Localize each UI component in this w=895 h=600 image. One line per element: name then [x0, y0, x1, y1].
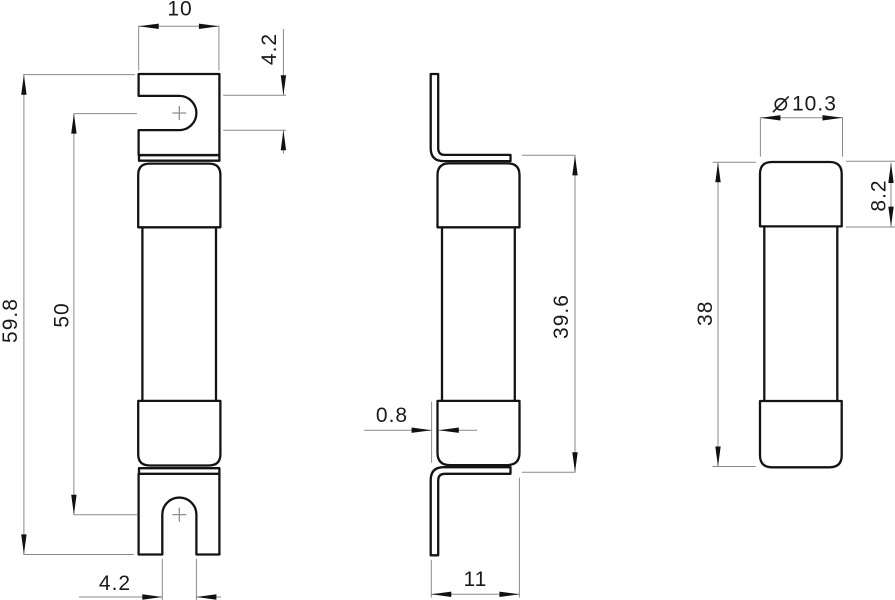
svg-text:39.6: 39.6 [550, 294, 573, 339]
svg-text:8.2: 8.2 [868, 179, 891, 211]
svg-text:4.2: 4.2 [258, 33, 281, 65]
svg-text:4.2: 4.2 [99, 572, 131, 595]
svg-text:38: 38 [694, 301, 717, 326]
svg-text:0.8: 0.8 [376, 404, 408, 427]
svg-text:11: 11 [463, 568, 487, 591]
svg-text:59.8: 59.8 [0, 298, 22, 343]
svg-text:10.3: 10.3 [792, 92, 837, 115]
svg-text:10: 10 [167, 0, 192, 21]
svg-text:50: 50 [51, 302, 74, 327]
